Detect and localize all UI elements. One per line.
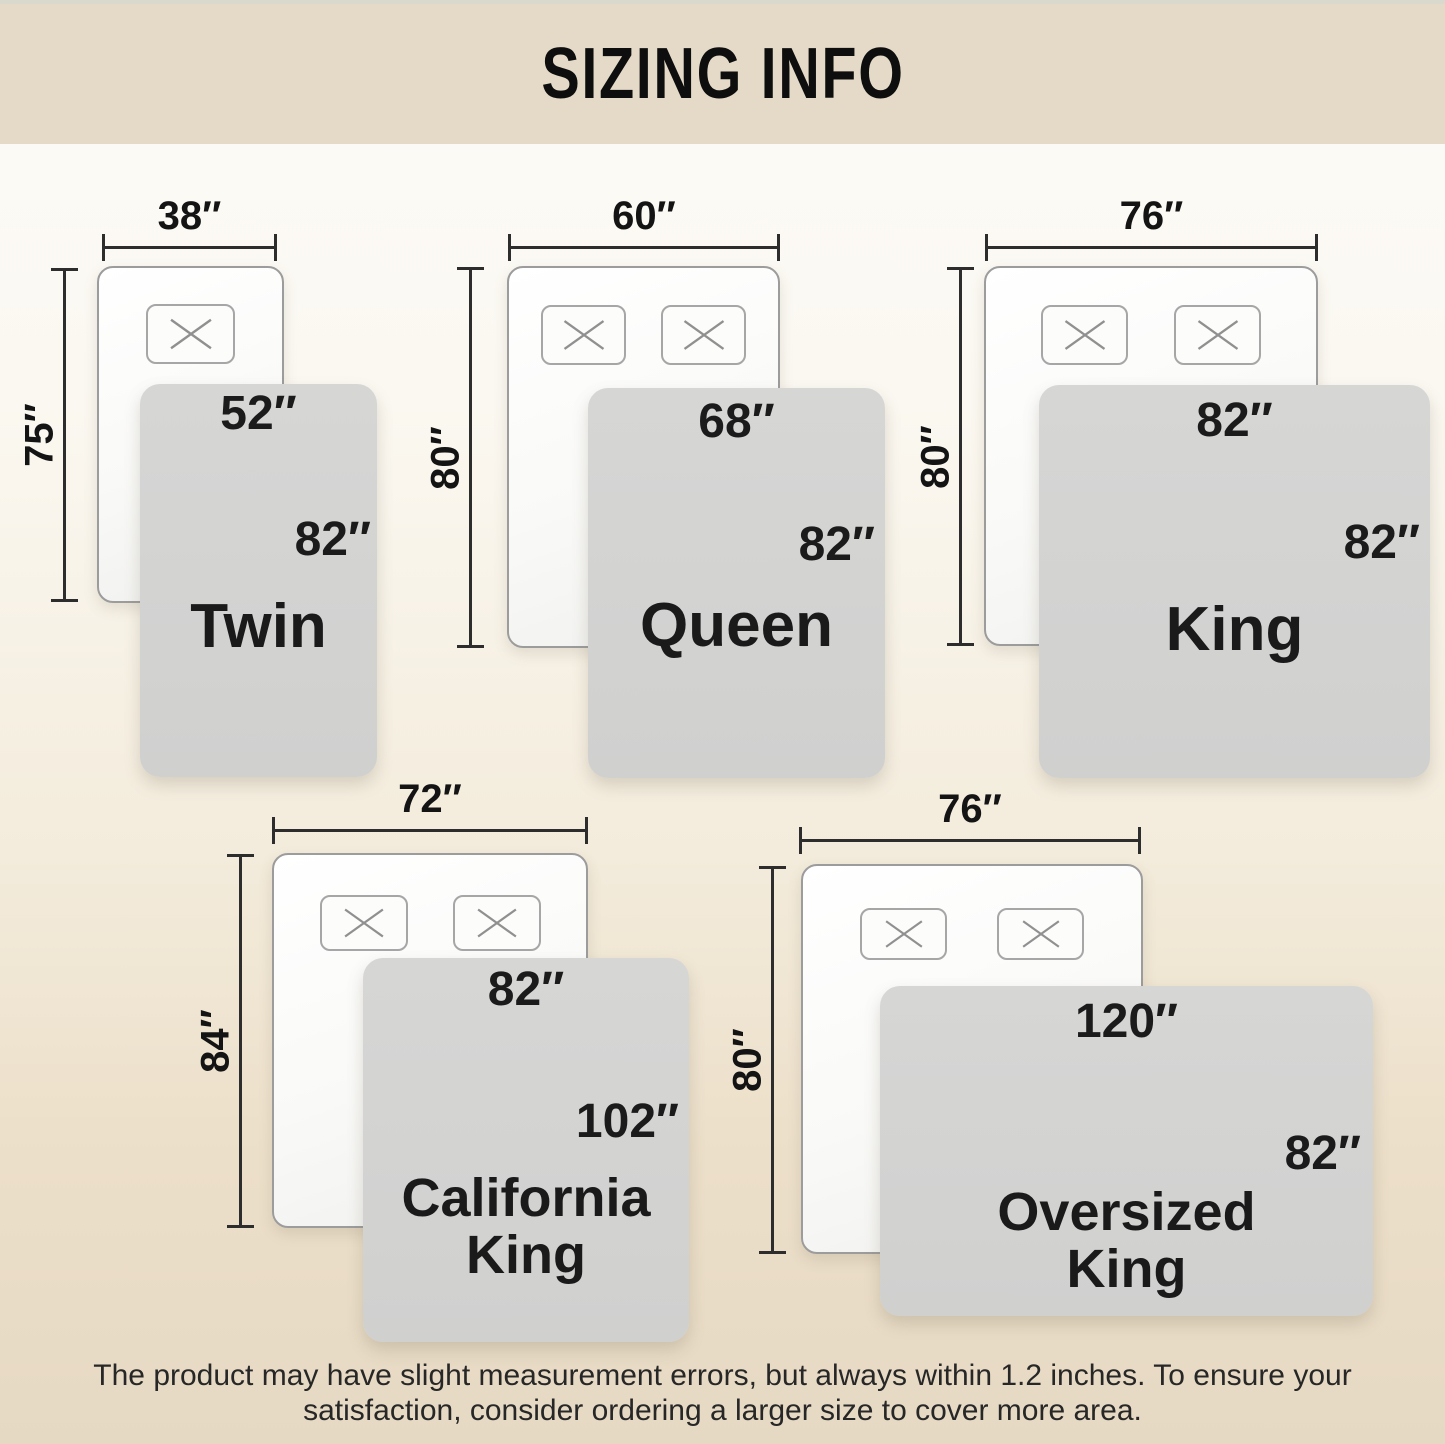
- twin-blanket: 52″ 82″ Twin: [140, 384, 377, 777]
- pillow-cross-icon: [338, 905, 390, 941]
- pillow-cross-icon: [1192, 316, 1244, 354]
- twin-length-label: 75″: [18, 403, 63, 467]
- dimension-tick: [274, 234, 277, 261]
- pillow: [541, 305, 626, 365]
- dimension-line: [239, 854, 242, 1228]
- pillow-cross-icon: [678, 316, 730, 354]
- twin-width-dimension: 38″: [102, 234, 277, 261]
- dimension-tick: [227, 1225, 254, 1228]
- king-length-dimension: 80″: [947, 267, 974, 646]
- dimension-line: [63, 268, 66, 602]
- pillow: [320, 895, 408, 951]
- pillow-cross-icon: [164, 315, 218, 353]
- california-king-length-dimension: 84″: [227, 854, 254, 1228]
- pillow: [661, 305, 746, 365]
- dimension-line: [959, 267, 962, 646]
- queen-blanket: 68″ 82″ Queen: [588, 388, 885, 778]
- dimension-tick: [1315, 234, 1318, 261]
- oversized-king-length-dimension: 80″: [759, 866, 786, 1254]
- dimension-tick: [777, 234, 780, 261]
- oversized-king-size-name: Oversized King: [957, 1184, 1297, 1298]
- oversized-king-blanket-length-label: 82″: [1285, 1126, 1361, 1181]
- dimension-line: [799, 839, 1141, 842]
- sizing-info-page: SIZING INFO 38″ 75″ 52″ 82″ Twin: [0, 0, 1445, 1444]
- dimension-line: [102, 246, 277, 249]
- dimension-line: [469, 267, 472, 648]
- queen-blanket-width-label: 68″: [698, 394, 774, 449]
- pillow-cross-icon: [558, 316, 610, 354]
- dimension-line: [985, 246, 1318, 249]
- twin-length-dimension: 75″: [51, 268, 78, 602]
- oversized-king-width-label: 76″: [938, 787, 1002, 832]
- california-king-blanket: 82″ 102″ California King: [363, 958, 689, 1342]
- pillow-cross-icon: [1059, 316, 1111, 354]
- pillow: [1041, 305, 1128, 365]
- california-king-size-name: California King: [361, 1170, 691, 1284]
- king-blanket-length-label: 82″: [1344, 515, 1420, 570]
- king-blanket-width-label: 82″: [1196, 393, 1272, 448]
- disclaimer-line-2: satisfaction, consider ordering a larger…: [0, 1393, 1445, 1428]
- dimension-tick: [1138, 827, 1141, 854]
- dimension-line: [272, 829, 588, 832]
- queen-width-label: 60″: [612, 194, 676, 239]
- king-length-label: 80″: [914, 425, 959, 489]
- queen-width-dimension: 60″: [508, 234, 780, 261]
- oversized-king-length-label: 80″: [726, 1028, 771, 1092]
- dimension-tick: [585, 817, 588, 844]
- pillow-cross-icon: [1016, 917, 1066, 951]
- header-banner: SIZING INFO: [0, 4, 1445, 144]
- twin-width-label: 38″: [158, 194, 222, 239]
- page-title: SIZING INFO: [541, 33, 904, 115]
- dimension-tick: [947, 643, 974, 646]
- pillow: [146, 304, 235, 364]
- twin-blanket-width-label: 52″: [220, 386, 296, 441]
- california-king-length-label: 84″: [194, 1009, 239, 1073]
- california-king-blanket-width-label: 82″: [488, 962, 564, 1017]
- disclaimer: The product may have slight measurement …: [0, 1358, 1445, 1428]
- queen-length-dimension: 80″: [457, 267, 484, 648]
- pillow: [1174, 305, 1261, 365]
- dimension-tick: [51, 599, 78, 602]
- king-width-label: 76″: [1120, 194, 1184, 239]
- pillow-cross-icon: [471, 905, 523, 941]
- twin-blanket-length-label: 82″: [295, 512, 371, 567]
- queen-length-label: 80″: [424, 426, 469, 490]
- disclaimer-line-1: The product may have slight measurement …: [0, 1358, 1445, 1393]
- queen-blanket-length-label: 82″: [799, 517, 875, 572]
- queen-size-name: Queen: [640, 593, 833, 659]
- pillow: [997, 908, 1084, 960]
- dimension-tick: [457, 645, 484, 648]
- california-king-blanket-length-label: 102″: [576, 1094, 679, 1149]
- dimension-line: [508, 246, 780, 249]
- king-blanket: 82″ 82″ King: [1039, 385, 1430, 778]
- pillow: [860, 908, 947, 960]
- dimension-line: [771, 866, 774, 1254]
- oversized-king-blanket-width-label: 120″: [1075, 994, 1178, 1049]
- oversized-king-width-dimension: 76″: [799, 827, 1141, 854]
- king-size-name: King: [1166, 597, 1304, 663]
- twin-size-name: Twin: [190, 594, 327, 660]
- california-king-width-label: 72″: [398, 777, 462, 822]
- pillow-cross-icon: [879, 917, 929, 951]
- king-width-dimension: 76″: [985, 234, 1318, 261]
- dimension-tick: [759, 1251, 786, 1254]
- pillow: [453, 895, 541, 951]
- oversized-king-blanket: 120″ 82″ Oversized King: [880, 986, 1373, 1316]
- california-king-width-dimension: 72″: [272, 817, 588, 844]
